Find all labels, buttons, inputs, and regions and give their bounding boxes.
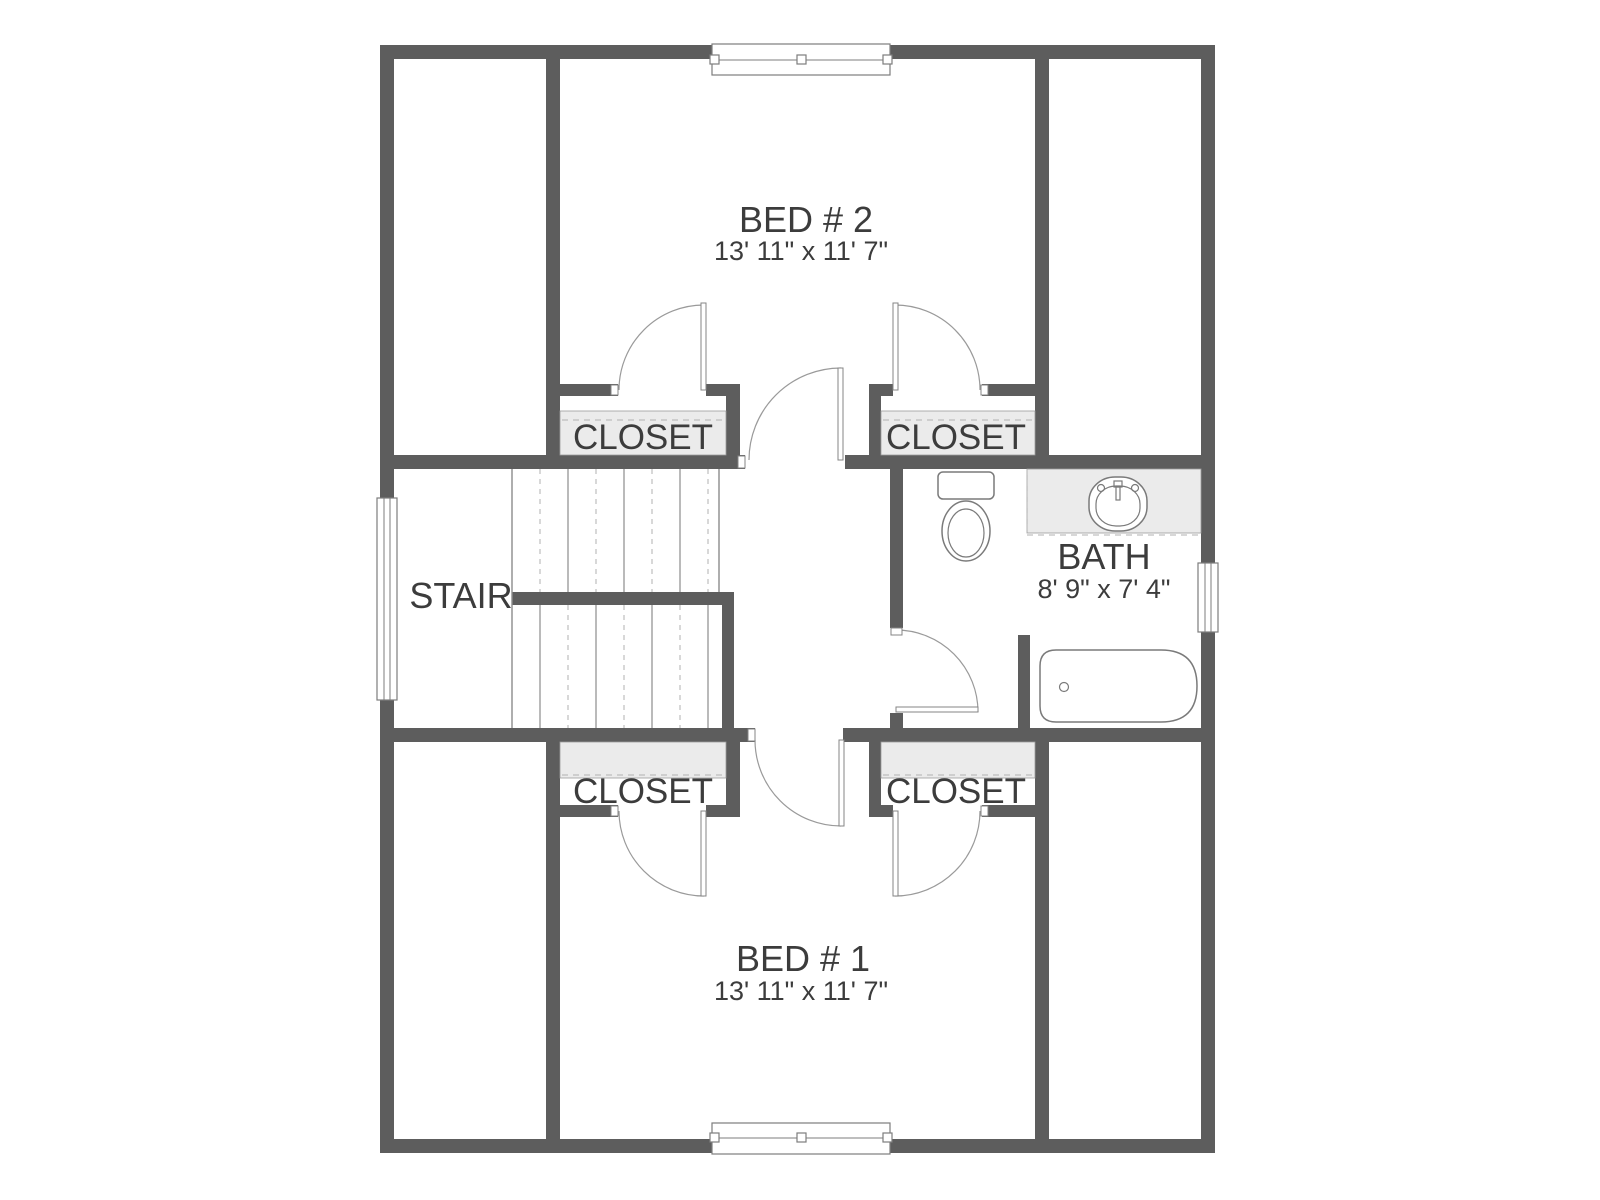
bed2-door — [738, 368, 843, 468]
bath-label: BATH — [1057, 536, 1150, 577]
bed1-closet-left-label: CLOSET — [573, 772, 713, 811]
toilet — [938, 472, 994, 561]
toilet-tank — [938, 472, 994, 499]
right-window — [1198, 563, 1218, 632]
bed1-dimensions: 13' 11" x 11' 7" — [714, 976, 888, 1006]
door-leaf — [701, 811, 706, 896]
wall — [890, 469, 903, 628]
bed1-closet-right-label: CLOSET — [886, 772, 1026, 811]
wall — [722, 605, 734, 728]
door-jamb — [981, 385, 988, 395]
window-mullion — [710, 55, 719, 64]
door-jamb — [738, 456, 745, 468]
wall — [726, 384, 740, 455]
wall — [1018, 635, 1030, 728]
door-arc — [749, 368, 841, 460]
tub-outline — [1040, 650, 1197, 722]
bed2-dimensions: 13' 11" x 11' 7" — [714, 236, 888, 266]
wall — [560, 384, 618, 396]
bed2-closet-right-door — [893, 303, 988, 395]
bed2-label: BED # 2 — [739, 199, 873, 240]
wall — [394, 728, 755, 742]
window-mullion — [883, 55, 892, 64]
wall — [890, 713, 903, 728]
bathtub — [1040, 650, 1197, 722]
wall — [843, 728, 1201, 742]
wall — [394, 455, 745, 469]
vanity-counter — [1027, 469, 1201, 535]
wall — [546, 742, 560, 1139]
bed2-closet-right-label: CLOSET — [886, 418, 1026, 457]
wall — [1035, 59, 1049, 455]
toilet-bowl — [942, 501, 990, 561]
wall — [726, 742, 740, 817]
window — [1198, 563, 1218, 632]
door-arc — [755, 740, 841, 826]
bottom-window — [710, 1123, 892, 1154]
door-leaf — [896, 707, 978, 712]
floor-plan: BED # 2 13' 11" x 11' 7" CLOSET CLOSET S… — [0, 0, 1600, 1200]
door-leaf — [893, 303, 898, 390]
floor-plan-drawing: BED # 2 13' 11" x 11' 7" CLOSET CLOSET S… — [0, 0, 1600, 1200]
wall — [1035, 742, 1049, 1139]
sink — [1089, 477, 1147, 531]
bed1-closet-left-door — [611, 806, 706, 896]
bed1-label: BED # 1 — [736, 938, 870, 979]
door-arc — [896, 630, 978, 712]
wall — [869, 384, 893, 396]
door-arc — [895, 811, 980, 896]
bath-dimensions: 8' 9" x 7' 4" — [1037, 574, 1170, 604]
door-leaf — [839, 740, 844, 826]
door-arc — [895, 305, 980, 390]
window-mullion — [797, 1133, 806, 1142]
door-leaf — [701, 303, 706, 390]
sink-basin — [1089, 477, 1147, 531]
wall — [546, 59, 560, 455]
window-mullion — [797, 55, 806, 64]
door-jamb — [891, 628, 902, 635]
door-leaf — [893, 811, 898, 896]
bath-door — [891, 628, 978, 712]
door-arc — [619, 305, 704, 390]
wall — [845, 455, 1201, 469]
left-window — [377, 498, 397, 700]
bed2-closet-left-door — [611, 303, 706, 395]
door-leaf — [838, 368, 843, 460]
door-arc — [619, 811, 704, 896]
wall — [982, 384, 1035, 396]
wall — [512, 592, 734, 605]
bed1-door — [748, 729, 844, 826]
window-mullion — [883, 1133, 892, 1142]
door-jamb — [748, 729, 755, 741]
top-window — [710, 44, 892, 75]
door-jamb — [611, 385, 618, 395]
window-mullion — [710, 1133, 719, 1142]
bed1-closet-right-door — [893, 806, 988, 896]
window — [377, 498, 397, 700]
bed2-closet-left-label: CLOSET — [573, 418, 713, 457]
stair-label: STAIR — [409, 575, 512, 616]
